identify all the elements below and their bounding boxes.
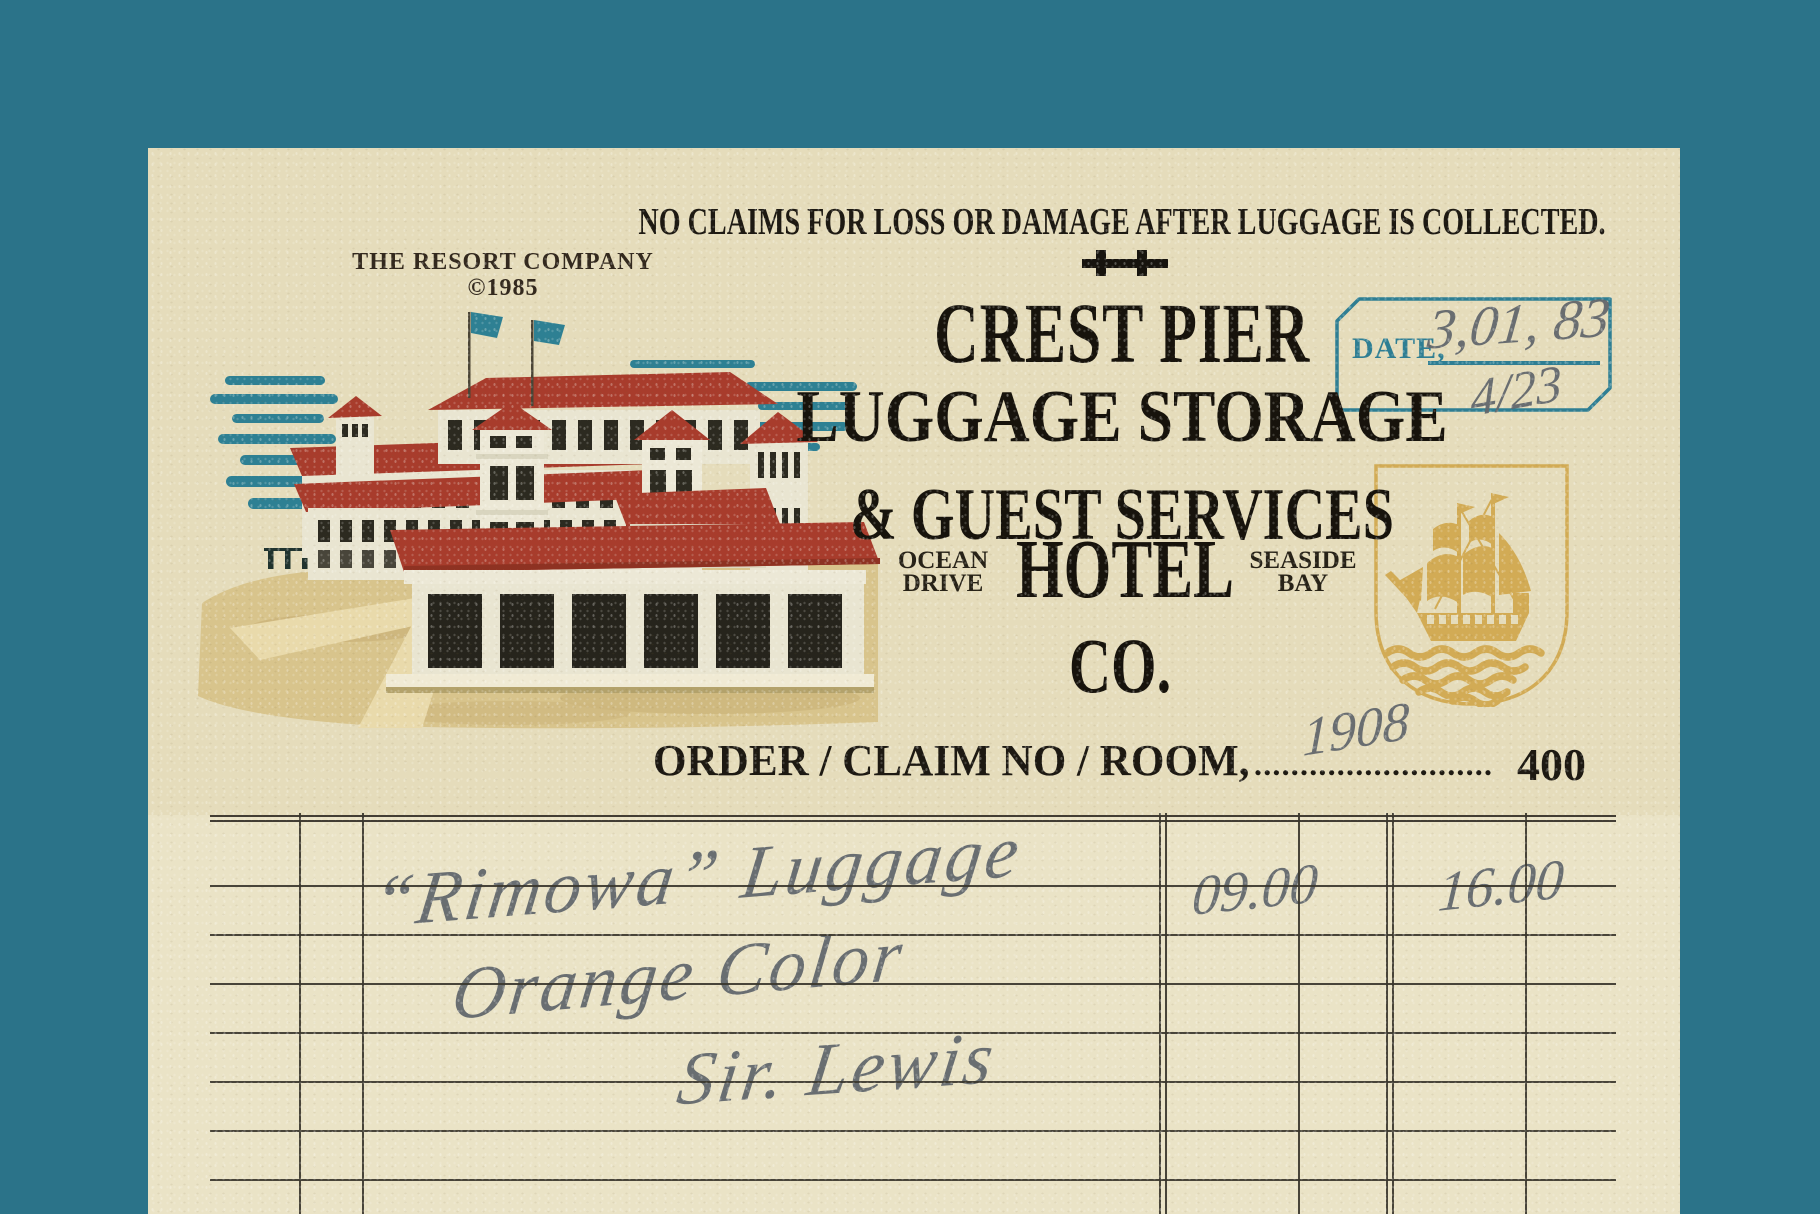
grid-hline <box>210 983 1616 985</box>
room-number: 400 <box>1517 742 1586 788</box>
grid-hline <box>210 1130 1616 1132</box>
copyright-year: ©1985 <box>468 276 539 300</box>
grid-hline <box>210 885 1616 887</box>
handwritten-amount-a: 09.00 <box>1190 855 1319 925</box>
grid-hline <box>210 1081 1616 1083</box>
grid-hline <box>210 934 1616 936</box>
grid-vline <box>1165 813 1167 1214</box>
order-claim-label: ORDER / CLAIM NO / ROOM, <box>653 739 1249 783</box>
resort-company-credit: THE RESORT COMPANY <box>352 250 654 274</box>
subtitle-luggage-storage: LUGGAGE STORAGE <box>796 380 1447 454</box>
address-seaside-bay: SEASIDE BAY <box>1250 549 1357 595</box>
address-ocean-drive: OCEAN DRIVE <box>898 549 988 595</box>
grid-vline <box>1159 813 1161 1214</box>
grid-vline <box>1298 813 1300 1214</box>
grid-vline <box>1386 813 1388 1214</box>
double-cross-divider-icon <box>1082 250 1168 276</box>
title-co: CO. <box>1069 627 1171 705</box>
no-claims-notice: NO CLAIMS FOR LOSS OR DAMAGE AFTER LUGGA… <box>638 203 1605 241</box>
luggage-claim-ticket: THE RESORT COMPANY ©1985 <box>0 0 1820 1214</box>
title-hotel: HOTEL <box>1016 528 1234 612</box>
grid-vline <box>362 813 364 1214</box>
handwritten-date: 3,01, 83 <box>1425 289 1613 358</box>
grid-hline <box>210 1032 1616 1034</box>
ship-emblem <box>1373 463 1570 707</box>
grid-vline <box>1525 813 1527 1214</box>
grid-hline <box>210 815 1616 817</box>
grid-vline <box>1392 813 1394 1214</box>
hotel-illustration <box>190 298 880 730</box>
grid-hline <box>210 820 1616 822</box>
grid-vline <box>299 813 301 1214</box>
page-title: CREST PIER <box>934 290 1310 376</box>
grid-hline <box>210 1179 1616 1181</box>
